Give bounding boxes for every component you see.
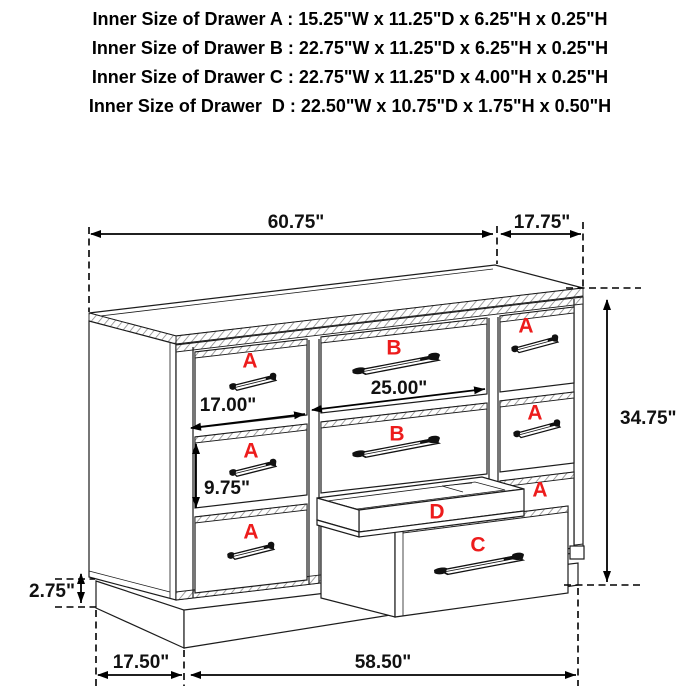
drawer-label-c: C <box>470 534 485 557</box>
drawer-label-a: A <box>527 402 542 425</box>
drawer-a-top-right: A <box>500 307 574 392</box>
dresser-dimension-diagram: Inner Size of Drawer A : 15.25"W x 11.25… <box>0 0 700 700</box>
dim-top-depth: 17.75" <box>514 212 571 233</box>
dim-overall-height: 34.75" <box>620 408 677 429</box>
dim-drawer-a-width: 17.00" <box>200 395 257 416</box>
dim-drawer-b-width: 25.00" <box>371 378 428 399</box>
cabinet-left-side-panel <box>89 321 176 600</box>
drawer-runner-bracket <box>570 546 584 559</box>
dim-base-depth: 17.50" <box>113 652 170 673</box>
drawer-label-d: D <box>429 501 444 524</box>
drawer-label-a: A <box>518 315 533 338</box>
dim-base-width: 58.50" <box>355 652 412 673</box>
drawer-label-b: B <box>389 423 404 446</box>
drawer-a-bottom-left: A <box>195 504 307 593</box>
dim-drawer-a-height: 9.75" <box>204 478 250 499</box>
drawer-label-a: A <box>243 521 258 544</box>
drawer-label-a: A <box>243 440 258 463</box>
dim-base-height: 2.75" <box>29 581 75 602</box>
dim-top-width: 60.75" <box>268 212 325 233</box>
drawer-label-a: A <box>532 479 547 502</box>
drawer-a-middle-right: A <box>500 392 574 472</box>
dresser-line-drawing: A A A B B <box>0 0 700 700</box>
drawer-label-b: B <box>386 337 401 360</box>
drawer-label-a: A <box>242 350 257 373</box>
